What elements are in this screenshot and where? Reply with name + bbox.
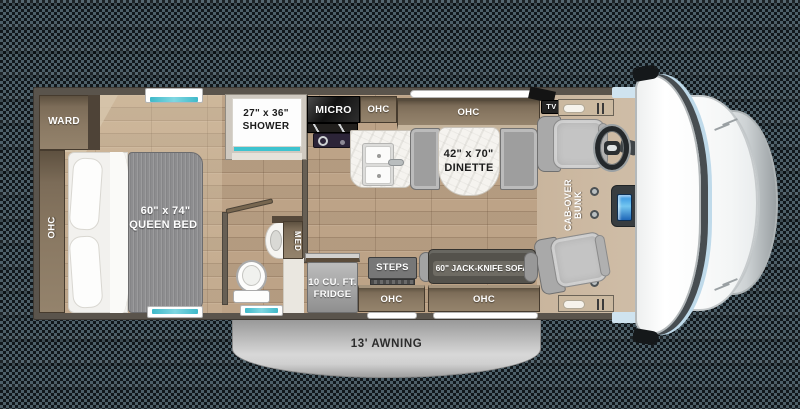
wardrobe-label: WARD <box>40 116 88 128</box>
window-glass <box>245 308 278 313</box>
floorplan-canvas: 13' AWNING WARD OHC 60" x 74" QUEEN BED … <box>0 0 800 409</box>
fridge-cabinet-top <box>305 253 360 262</box>
bath-marble-floor <box>283 258 304 313</box>
drain-icon <box>377 154 381 158</box>
fridge-name-label: FRIDGE <box>308 290 357 301</box>
bed-name-label: QUEEN BED <box>121 219 206 232</box>
steering-wheel <box>595 126 629 170</box>
sofa-overhead-cabinet: OHC <box>428 285 540 312</box>
window-glass <box>152 309 198 314</box>
vanity-sink-bowl <box>270 230 282 251</box>
center-console <box>611 185 638 227</box>
window-glass <box>150 97 198 102</box>
shower-stall: 27" x 36" SHOWER <box>225 94 307 160</box>
wardrobe-cabinet: WARD <box>39 95 89 150</box>
window <box>145 88 203 103</box>
fridge-size-label: 10 CU. FT. <box>308 278 357 289</box>
dinette-overhead-cabinet: OHC <box>397 98 540 130</box>
dinette-ohc-label: OHC <box>398 108 539 119</box>
refrigerator: 10 CU. FT. FRIDGE <box>307 262 358 313</box>
med-label: MED <box>286 225 302 257</box>
medicine-cabinet: MED <box>283 221 303 259</box>
cab-door-sill-top <box>558 99 614 116</box>
awning-label: 13' AWNING <box>233 338 540 352</box>
toilet-bowl <box>236 260 267 293</box>
bedroom-ohc-label: OHC <box>48 207 59 247</box>
burner-knob-icon <box>340 140 345 145</box>
faucet <box>388 159 404 166</box>
bed-size-label: 60" x 74" <box>129 205 202 218</box>
dash-knob <box>590 187 599 196</box>
entry-overhead-cabinet: OHC <box>358 285 425 312</box>
jack-knife-sofa: 60" JACK-KNIFE SOFA <box>428 249 536 284</box>
dinette-name-label: DINETTE <box>439 162 499 175</box>
window <box>367 312 417 319</box>
toilet-seat <box>242 265 261 286</box>
sofa-label-panel: 60" JACK-KNIFE SOFA <box>433 261 531 276</box>
steps-label: STEPS <box>369 263 416 274</box>
kitchen-ohc-label: OHC <box>361 105 396 116</box>
hinge-mark <box>597 299 599 310</box>
bedroom-overhead-cabinet: OHC <box>39 150 65 313</box>
dinette-table: 42" x 70" DINETTE <box>438 127 500 196</box>
queen-bed-mattress: 60" x 74" QUEEN BED <box>128 152 203 313</box>
drain-icon <box>377 174 381 178</box>
microwave-label: MICRO <box>308 104 359 116</box>
vanity-counter <box>265 222 285 259</box>
shower-size-label: 27" x 36" <box>226 108 306 120</box>
window <box>410 90 535 98</box>
shower-threshold <box>232 153 302 160</box>
toilet-tank <box>233 290 270 303</box>
window <box>147 306 203 318</box>
shower-name-label: SHOWER <box>226 121 306 133</box>
horn-pad <box>607 145 617 151</box>
shower-glass-accent <box>234 147 300 151</box>
infotainment-screen <box>617 194 632 221</box>
wardrobe-side-panel <box>88 95 100 150</box>
window <box>433 312 538 319</box>
steering-hub <box>604 141 620 155</box>
entry-steps: STEPS <box>368 257 417 279</box>
passenger-seat-group <box>529 220 615 302</box>
pillow <box>69 157 104 231</box>
bath-wall-left <box>222 212 228 305</box>
sofa-ohc-label: OHC <box>429 295 539 306</box>
microwave: MICRO <box>307 96 360 123</box>
sofa-armrest <box>524 252 538 282</box>
hinge-mark <box>602 299 604 310</box>
window <box>240 305 283 316</box>
hinge-mark <box>602 103 604 114</box>
entry-ohc-label: OHC <box>359 295 424 306</box>
dash-knob <box>590 210 599 219</box>
burner-icon <box>318 136 328 146</box>
sofa-label: 60" JACK-KNIFE SOFA <box>433 264 531 274</box>
door-handle <box>563 104 585 113</box>
dinette-size-label: 42" x 70" <box>429 148 508 161</box>
pillow <box>69 235 104 309</box>
hinge-mark <box>597 103 599 114</box>
door-handle <box>563 300 585 309</box>
cooktop <box>313 133 351 148</box>
sink-basin <box>365 166 391 184</box>
kitchen-overhead-cabinet: OHC <box>360 96 397 123</box>
awning: 13' AWNING <box>232 318 541 378</box>
